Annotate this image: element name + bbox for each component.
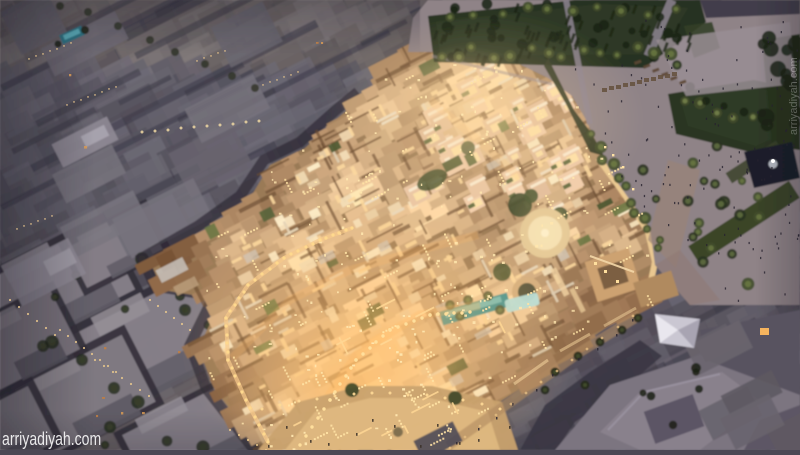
svg-text:arriyadiyah.com: arriyadiyah.com — [788, 57, 800, 135]
svg-text:arriyadiyah.com: arriyadiyah.com — [2, 429, 101, 449]
